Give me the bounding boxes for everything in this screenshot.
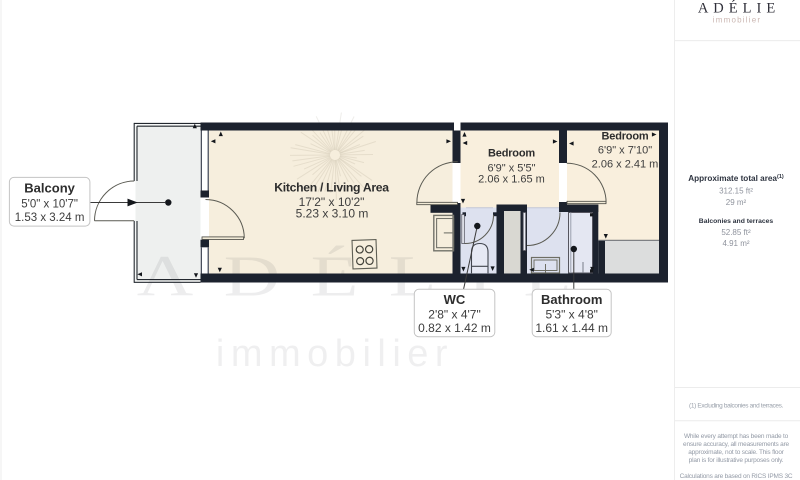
svg-text:While every attempt has been m: While every attempt has been made to bbox=[684, 433, 789, 440]
svg-text:Bedroom: Bedroom bbox=[488, 148, 535, 160]
svg-text:ADÉLIE: ADÉLIE bbox=[698, 0, 780, 17]
svg-text:ensure accuracy, all measureme: ensure accuracy, all measurements are bbox=[683, 441, 790, 448]
svg-text:4.91 m²: 4.91 m² bbox=[722, 239, 749, 248]
svg-text:2'8" x 4'7": 2'8" x 4'7" bbox=[428, 308, 480, 322]
svg-text:1.53 x 3.24 m: 1.53 x 3.24 m bbox=[15, 212, 85, 224]
svg-text:Kitchen / Living Area: Kitchen / Living Area bbox=[274, 181, 389, 195]
svg-text:Approximate total area(1): Approximate total area(1) bbox=[688, 174, 784, 183]
svg-text:29 m²: 29 m² bbox=[726, 198, 747, 207]
svg-text:plan is for illustrative purpo: plan is for illustrative purposes only. bbox=[689, 457, 784, 464]
svg-text:0.82 x 1.42 m: 0.82 x 1.42 m bbox=[418, 321, 491, 335]
svg-text:5.23 x 3.10 m: 5.23 x 3.10 m bbox=[296, 207, 369, 221]
svg-text:Bedroom: Bedroom bbox=[602, 131, 649, 143]
svg-text:2.06 x 2.41 m: 2.06 x 2.41 m bbox=[592, 159, 659, 171]
svg-text:Balconies and terraces: Balconies and terraces bbox=[699, 218, 774, 225]
svg-text:immobilier: immobilier bbox=[216, 333, 454, 375]
svg-text:Calculations are based on RICS: Calculations are based on RICS IPMS 3C bbox=[680, 473, 793, 480]
svg-text:52.85 ft²: 52.85 ft² bbox=[721, 228, 751, 237]
svg-text:6'9" x 5'5": 6'9" x 5'5" bbox=[487, 162, 535, 174]
svg-text:(1) Excluding balconies and te: (1) Excluding balconies and terraces. bbox=[689, 403, 784, 410]
svg-text:WC: WC bbox=[444, 292, 466, 307]
svg-text:immobilier: immobilier bbox=[713, 16, 761, 25]
svg-text:approximate, not to scale. Thi: approximate, not to scale. This floor bbox=[688, 449, 784, 456]
svg-text:6'9" x 7'10": 6'9" x 7'10" bbox=[598, 145, 652, 157]
svg-text:312.15 ft²: 312.15 ft² bbox=[719, 187, 753, 196]
svg-text:5'3" x 4'8": 5'3" x 4'8" bbox=[545, 308, 597, 322]
svg-text:1.61 x 1.44 m: 1.61 x 1.44 m bbox=[535, 321, 608, 335]
svg-text:2.06 x 1.65 m: 2.06 x 1.65 m bbox=[478, 174, 545, 186]
svg-text:Bathroom: Bathroom bbox=[541, 292, 602, 307]
svg-text:5'0" x 10'7": 5'0" x 10'7" bbox=[21, 199, 78, 211]
svg-text:Balcony: Balcony bbox=[24, 181, 75, 196]
